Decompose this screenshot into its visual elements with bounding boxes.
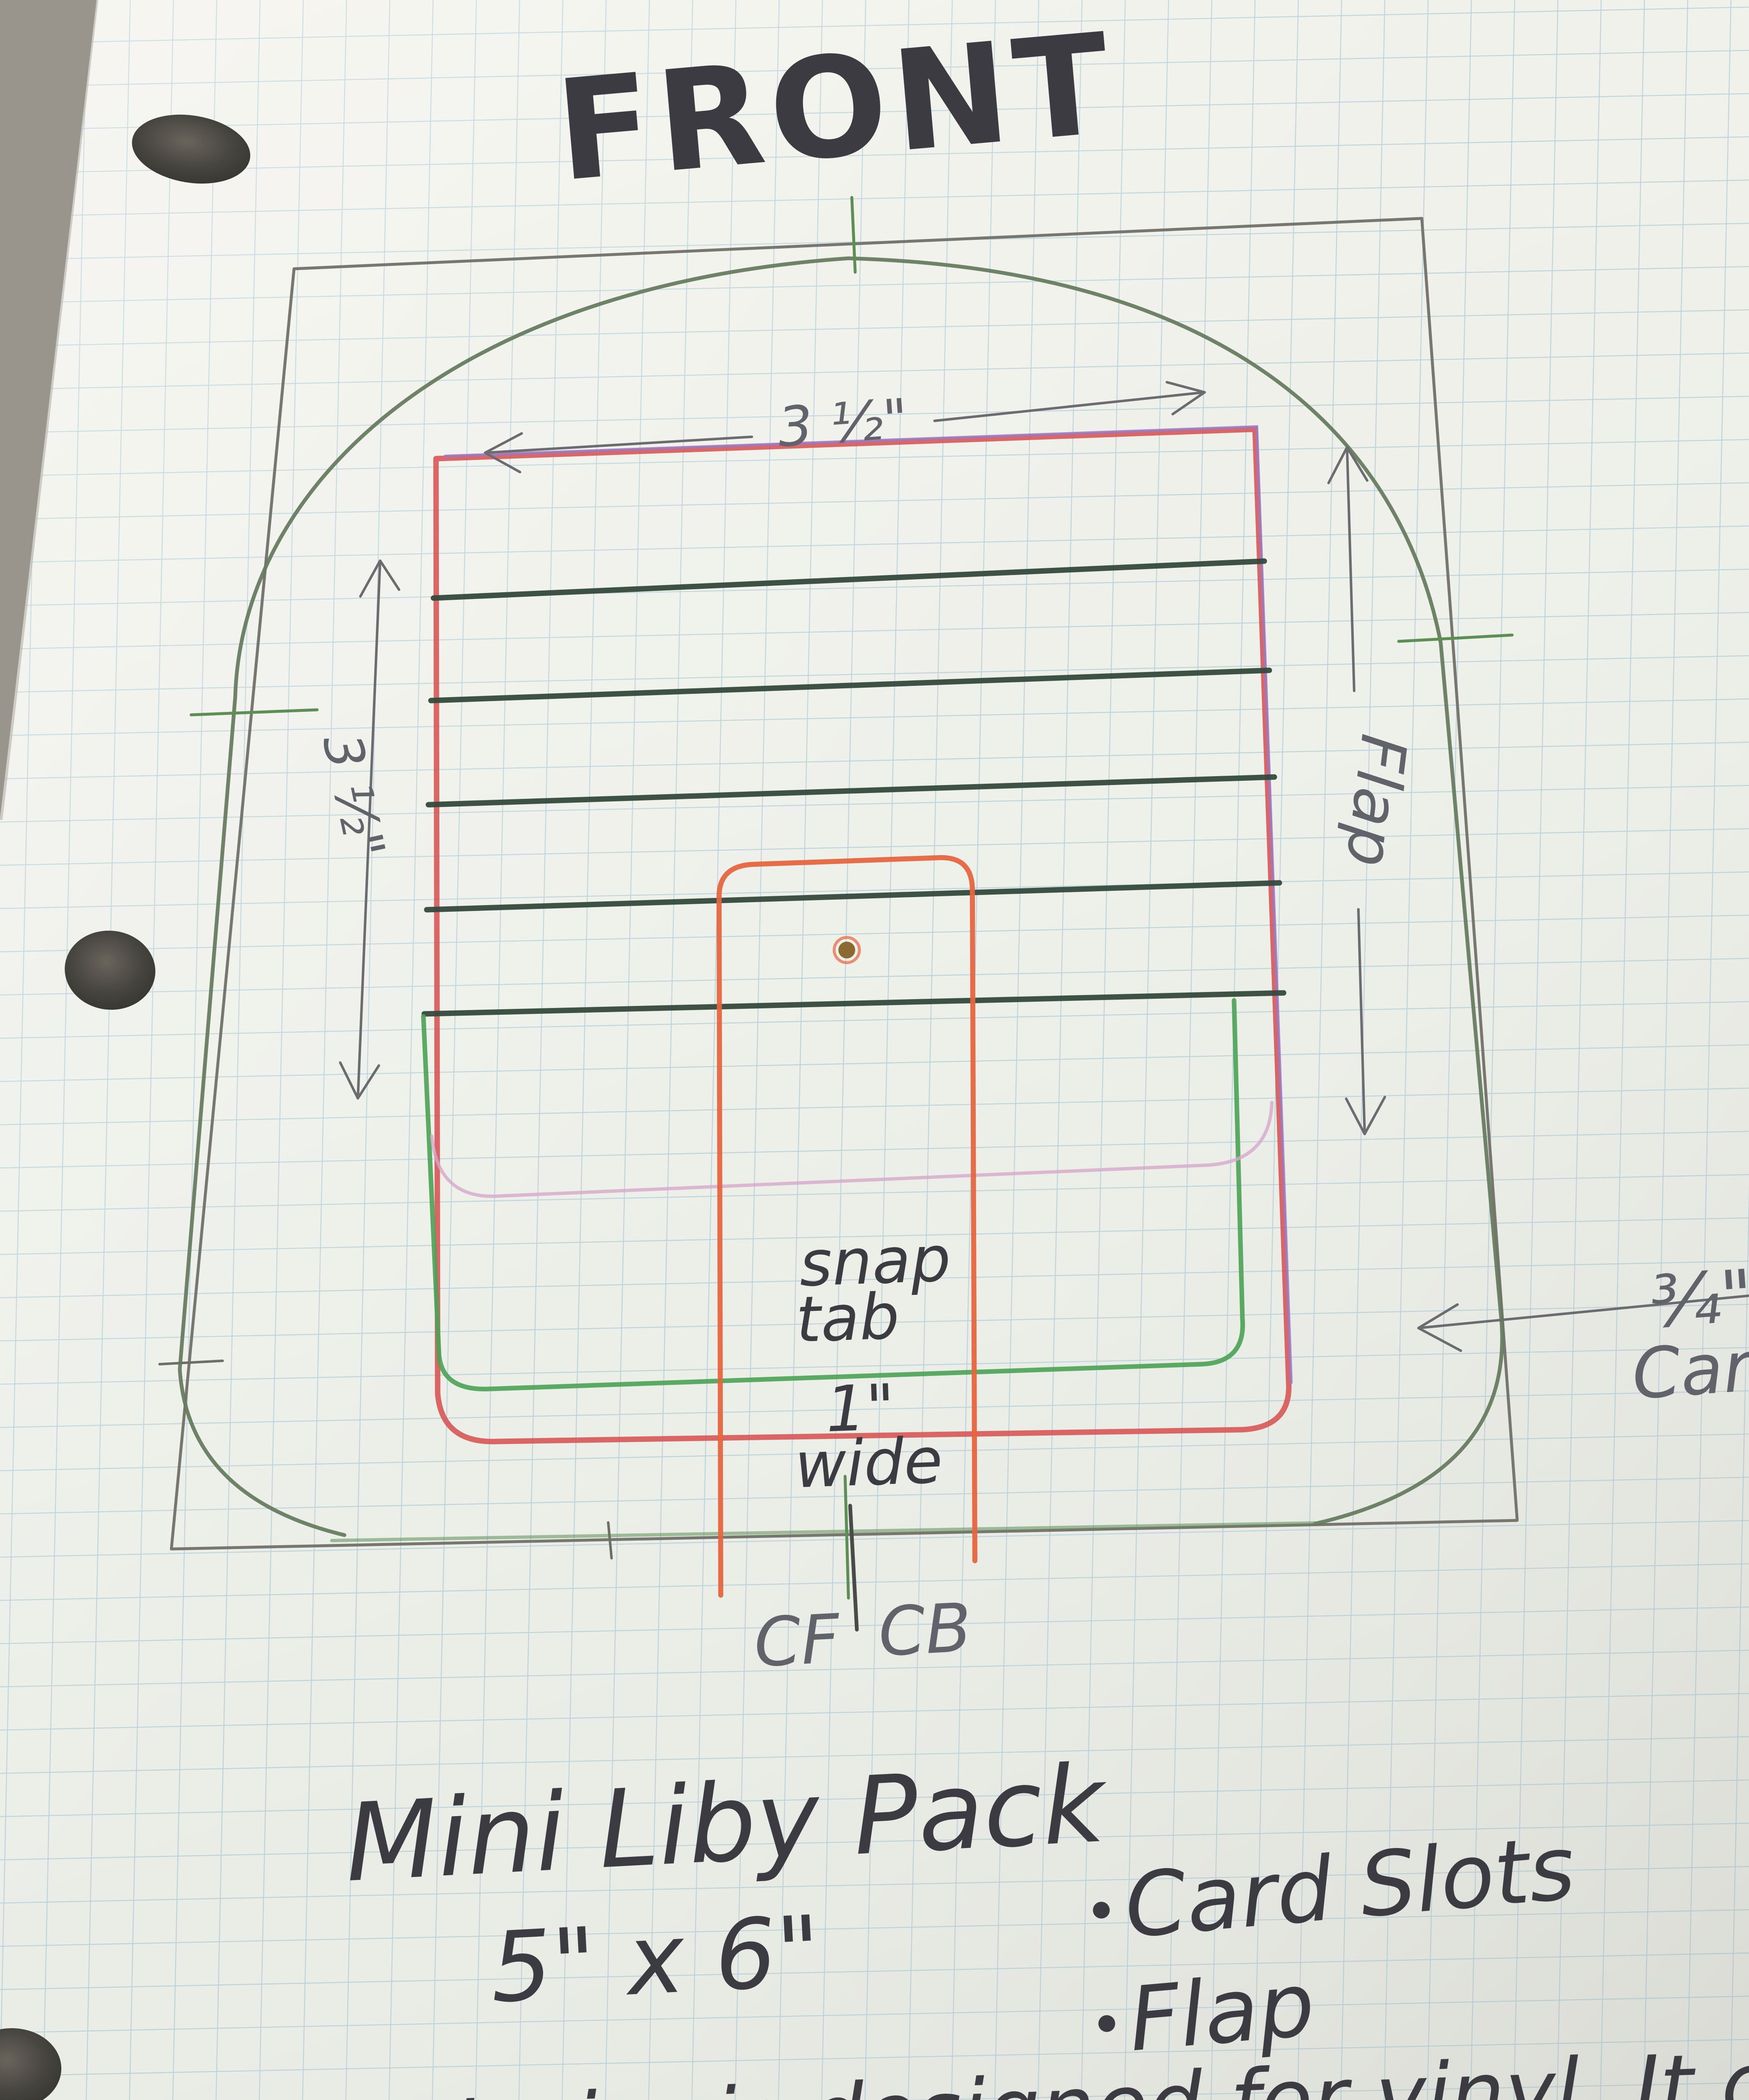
bullet-dot <box>1098 2015 1115 2032</box>
graph-paper-sheet: FRONT 3 ½" 3 ½" Flap snap tab 1" wide ¾"… <box>0 0 1749 2100</box>
top-width-dimension-label: 3 ½" <box>776 386 910 459</box>
center-back-label: CB <box>877 1588 974 1671</box>
photo-backdrop: FRONT 3 ½" 3 ½" Flap snap tab 1" wide ¾"… <box>0 0 1749 2100</box>
center-front-label: CF <box>752 1599 842 1683</box>
pattern-sketch-canvas: FRONT 3 ½" 3 ½" Flap snap tab 1" wide ¾"… <box>0 0 1749 2100</box>
snap-tab-label-line4: wide <box>793 1424 944 1502</box>
bullet-dot <box>1093 1902 1110 1919</box>
pattern-size-label: 5" x 6" <box>488 1895 823 2025</box>
snap-tab-label-line2: tab <box>795 1280 901 1357</box>
snap-stud-mark <box>838 942 855 958</box>
card-label: Card <box>1629 1323 1749 1415</box>
